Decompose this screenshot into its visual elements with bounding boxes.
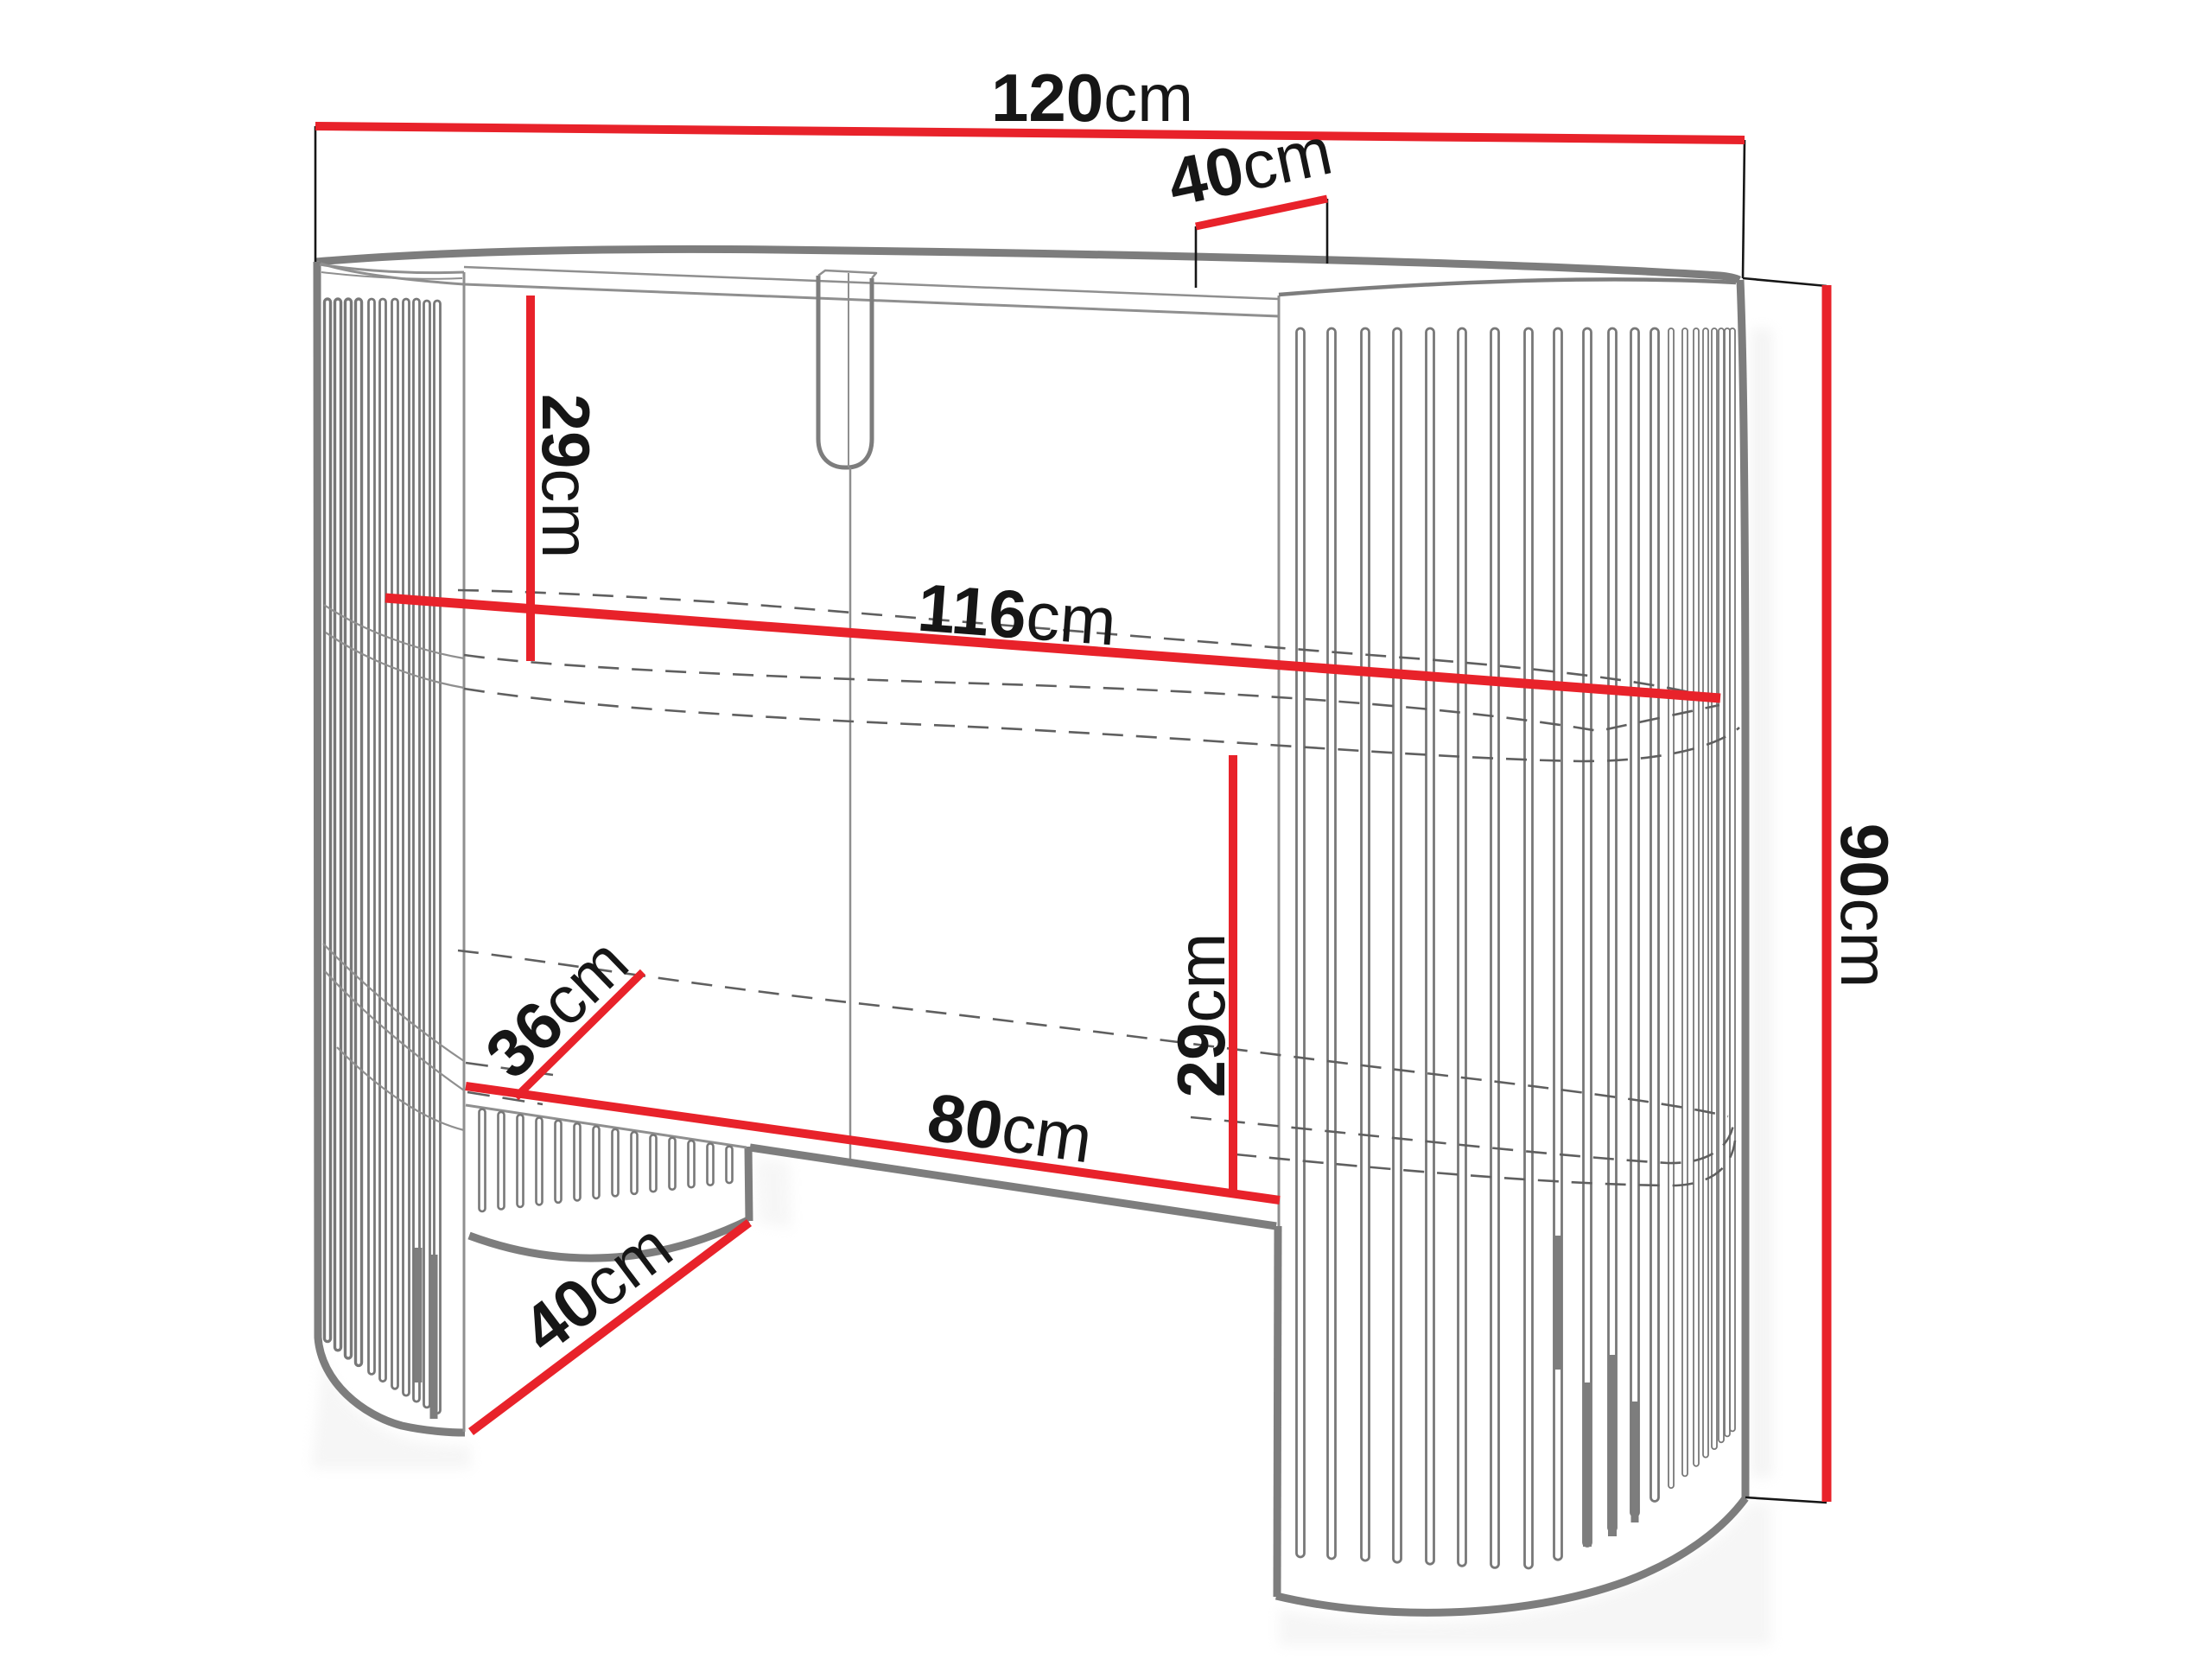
svg-text:120cm: 120cm [991,60,1193,136]
svg-text:29cm: 29cm [528,394,604,559]
svg-text:116cm: 116cm [915,569,1119,660]
svg-text:90cm: 90cm [1827,823,1903,988]
svg-text:29cm: 29cm [1163,933,1239,1098]
